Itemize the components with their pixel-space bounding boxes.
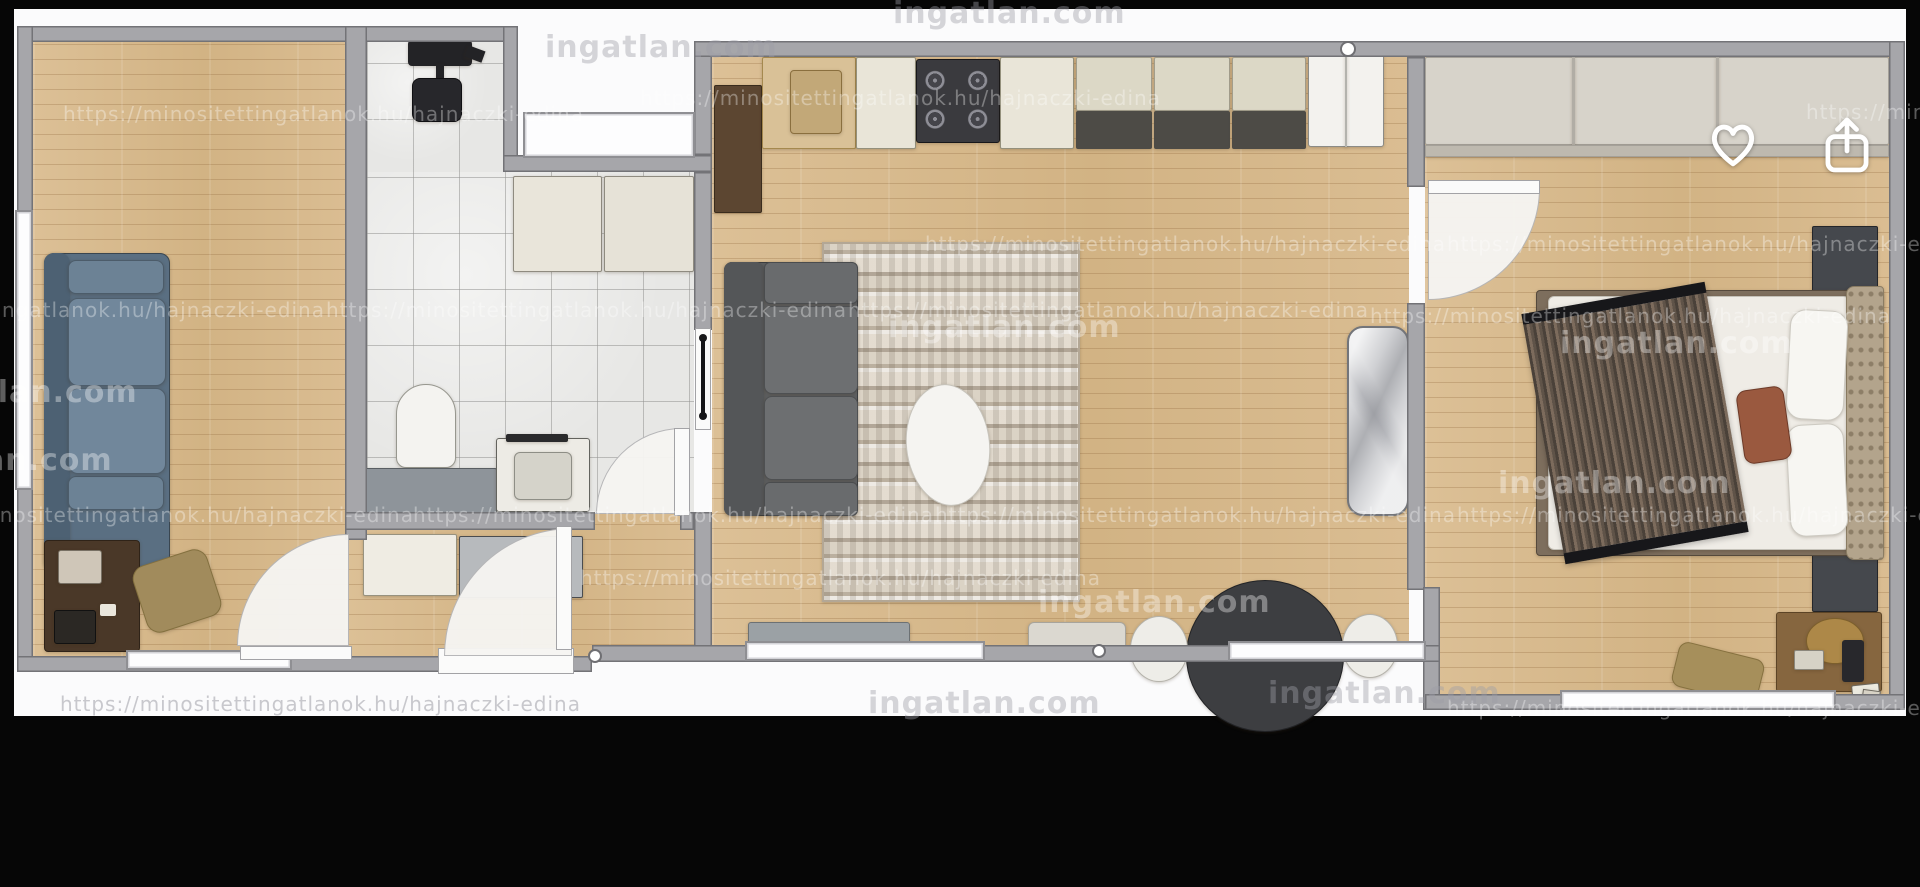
hall-cabinet-north-1 xyxy=(513,176,602,272)
kitchen-unit-cream-2 xyxy=(1154,57,1230,111)
kitchen-unit-white-1 xyxy=(856,57,916,149)
window-living-1 xyxy=(745,641,985,661)
desk-left-laptop xyxy=(54,610,96,644)
kitchen-unit-white-2 xyxy=(1000,57,1074,149)
sofa-living-cushion-2 xyxy=(764,396,858,480)
sofa-living-back xyxy=(724,262,764,516)
sofa-left-arm-bottom xyxy=(68,476,164,510)
toilet xyxy=(396,384,456,468)
marble-console xyxy=(1347,326,1409,516)
kitchen-base-3 xyxy=(1232,111,1306,149)
window-bedroom xyxy=(1560,690,1836,710)
desk-right-laptop xyxy=(1842,640,1864,682)
floorplan-image-viewer: https://minositettingatlanok.hu/hajnaczk… xyxy=(0,0,1920,887)
kitchen-unit-cream-1 xyxy=(1076,57,1152,111)
window-living-2 xyxy=(1228,641,1426,661)
bed-pillow-accent xyxy=(1735,385,1793,465)
window-left-wall xyxy=(15,210,33,490)
door-leaf-bathroom xyxy=(674,428,690,516)
kitchen-base-1 xyxy=(1076,111,1152,149)
wall-marker-bottom-2 xyxy=(1092,644,1106,658)
wall-notch-right xyxy=(694,41,712,155)
wall-marker-bottom-1 xyxy=(588,649,602,663)
hall-cabinet-north-2 xyxy=(604,176,694,272)
wall-top-main xyxy=(694,41,1905,57)
wall-divider-mid xyxy=(1407,303,1425,590)
window-notch xyxy=(523,112,695,158)
kitchen-sink xyxy=(790,70,842,134)
bed-pillow-2 xyxy=(1785,423,1849,538)
wall-top-left xyxy=(17,26,518,42)
sofa-left-cushion-1 xyxy=(68,298,166,386)
washing-machine-panel xyxy=(506,434,568,442)
door-leaf-bedroom xyxy=(1428,180,1540,194)
wall-room-divider xyxy=(345,26,367,540)
sofa-left-arm-top xyxy=(68,260,164,294)
bed-headboard xyxy=(1846,286,1884,560)
sliding-door-knob-bottom xyxy=(699,412,707,420)
bathroom-vanity xyxy=(363,468,497,516)
sofa-left-back xyxy=(44,253,70,571)
sliding-door-handle xyxy=(701,341,705,415)
sofa-living-arm-bottom xyxy=(764,482,858,516)
sofa-living-arm-top xyxy=(764,262,858,304)
kitchen-base-2 xyxy=(1154,111,1230,149)
hall-cabinet-white xyxy=(363,534,457,596)
door-leaf-left-room xyxy=(240,646,352,660)
boiler-top xyxy=(408,40,472,66)
wall-right xyxy=(1889,41,1905,710)
wall-kitchen-left-upper xyxy=(694,172,712,330)
desk-left-item xyxy=(100,604,116,616)
wall-notch-left xyxy=(503,26,518,172)
sliding-door-knob-top xyxy=(699,334,707,342)
kitchen-unit-cream-3 xyxy=(1232,57,1306,111)
sofa-left-cushion-2 xyxy=(68,388,166,474)
nightstand-north xyxy=(1812,226,1878,292)
bed-pillow-1 xyxy=(1785,309,1849,422)
wall-kitchen-left-lower xyxy=(694,512,712,649)
share-icon xyxy=(1820,114,1874,176)
desk-right-item xyxy=(1794,650,1824,670)
kitchen-stove xyxy=(916,59,1000,143)
favorite-button[interactable] xyxy=(1704,116,1762,172)
desk-left-photo xyxy=(58,550,102,584)
heart-icon xyxy=(1704,116,1762,172)
washing-machine-drum xyxy=(514,452,572,500)
fridge-door-line xyxy=(1345,53,1347,147)
kitchen-tall-cabinet xyxy=(714,85,762,213)
boiler-box xyxy=(412,78,462,122)
wall-marker-top xyxy=(1340,41,1356,57)
share-button[interactable] xyxy=(1820,114,1874,176)
wardrobe-divider-1 xyxy=(1572,57,1575,145)
sofa-living-cushion-1 xyxy=(764,306,858,394)
wall-divider-upper xyxy=(1407,57,1425,187)
door-leaf-entry xyxy=(556,526,572,650)
